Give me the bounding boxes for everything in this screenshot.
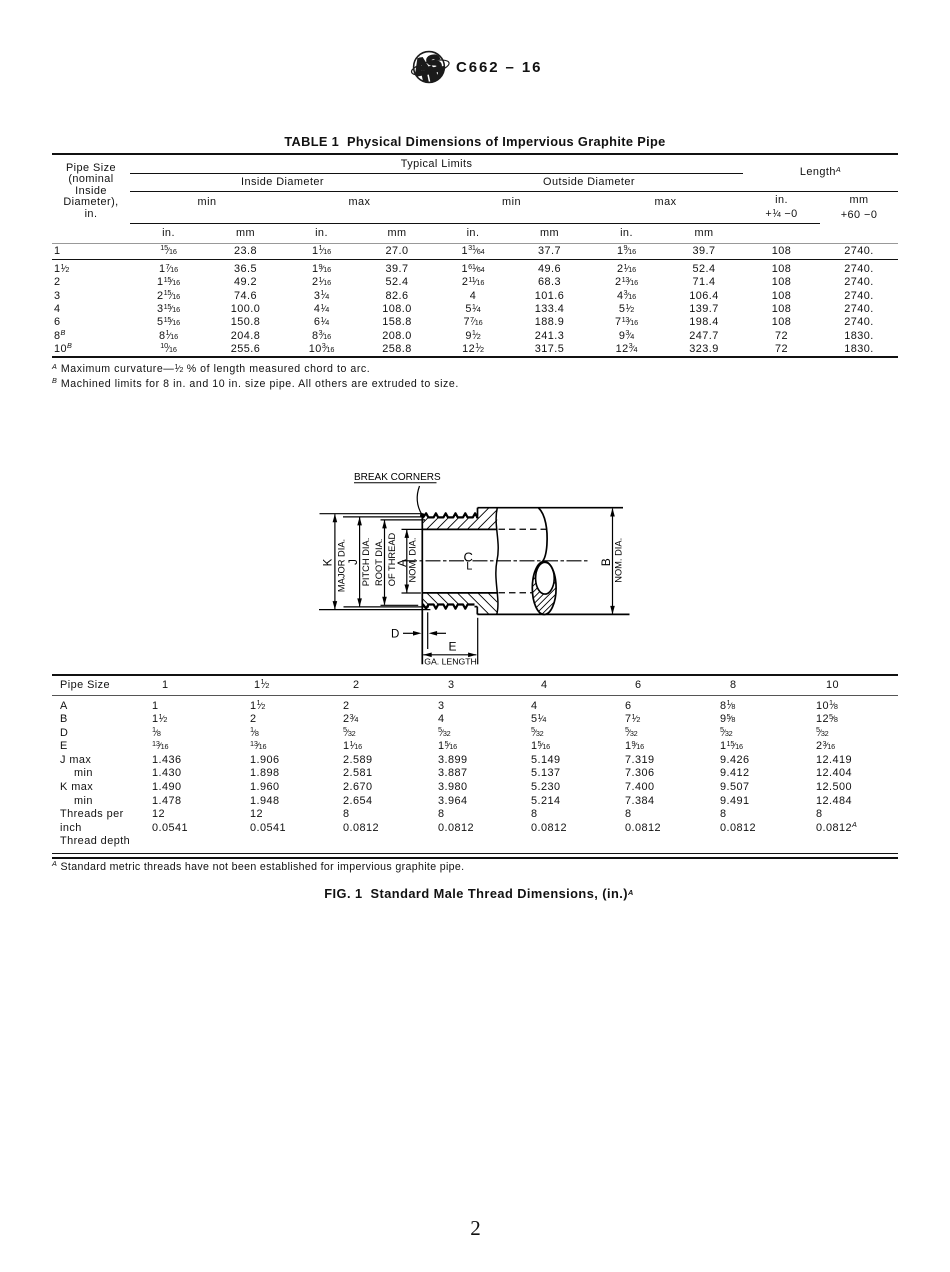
svg-text:L: L: [466, 561, 472, 573]
svg-text:D: D: [391, 629, 399, 641]
svg-text:PITCH DIA.: PITCH DIA.: [361, 538, 371, 587]
svg-text:J: J: [348, 559, 360, 565]
svg-text:ROOT DIA.: ROOT DIA.: [374, 539, 384, 586]
svg-text:NOM. DIA.: NOM. DIA.: [614, 538, 624, 583]
svg-text:B: B: [599, 558, 613, 566]
svg-text:E: E: [449, 640, 457, 654]
svg-text:GA. LENGTH: GA. LENGTH: [424, 657, 477, 667]
svg-text:NOM. DIA.: NOM. DIA.: [408, 538, 418, 583]
svg-text:BREAK CORNERS: BREAK CORNERS: [354, 472, 441, 483]
svg-text:MAJOR DIA.: MAJOR DIA.: [336, 539, 346, 592]
svg-text:K: K: [322, 558, 334, 566]
svg-text:OF THREAD: OF THREAD: [387, 532, 397, 586]
